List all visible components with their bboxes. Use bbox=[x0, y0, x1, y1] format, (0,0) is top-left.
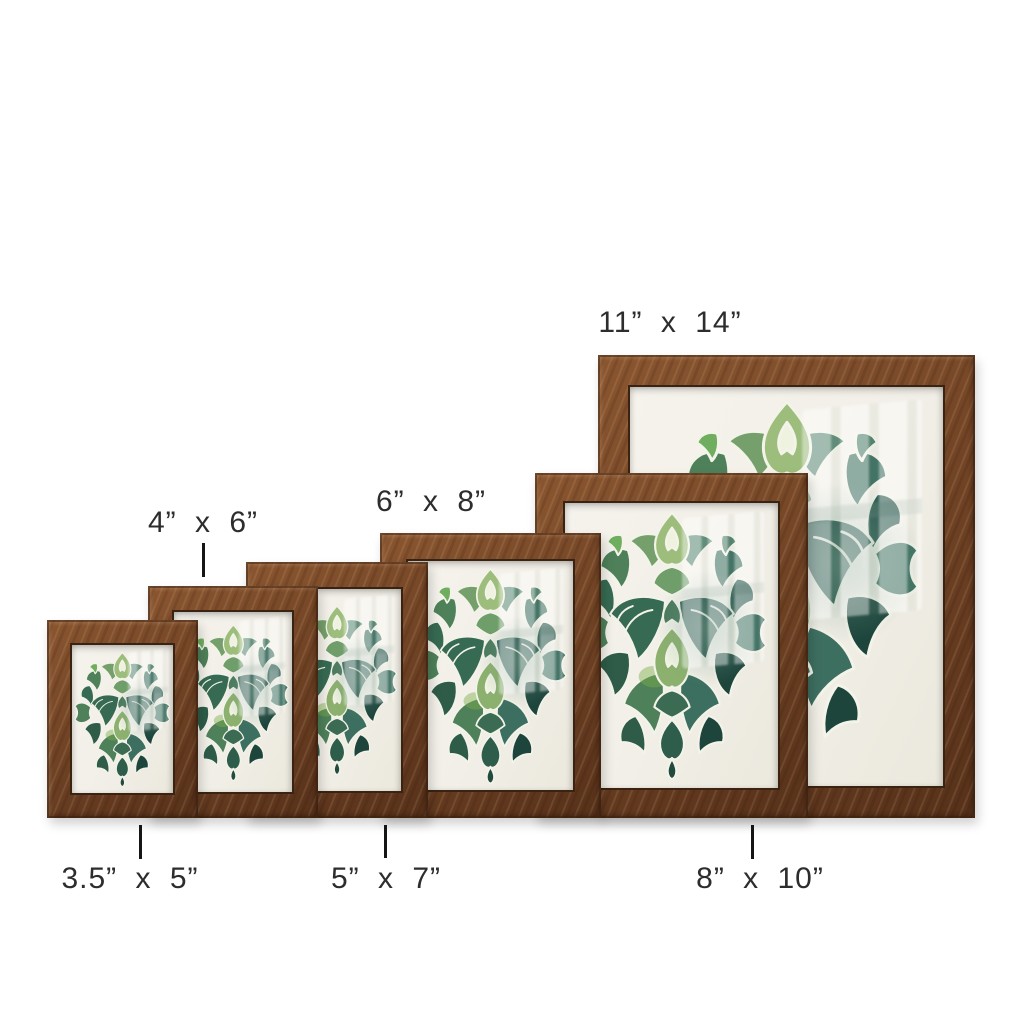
size-label-4x6: 4” x 6” bbox=[148, 506, 258, 540]
tick-3.5x5 bbox=[139, 825, 142, 859]
product-image-canvas: 11” x 14” 6” x 8” 4” x 6” 3.5” x 5” 5” x… bbox=[0, 0, 1024, 1024]
glass-reflection-panes bbox=[499, 568, 563, 695]
glass-reflection-panes bbox=[128, 649, 168, 732]
size-label-3.5x5: 3.5” x 5” bbox=[61, 862, 198, 896]
glass-reflection-panes bbox=[239, 617, 285, 717]
size-label-11x14: 11” x 14” bbox=[598, 306, 741, 340]
size-label-6x8: 6” x 8” bbox=[376, 485, 486, 519]
tick-8x10 bbox=[751, 825, 754, 859]
frame-3.5x5-glass bbox=[70, 643, 175, 795]
tick-4x6 bbox=[202, 543, 205, 577]
frame-3.5x5 bbox=[47, 620, 198, 818]
size-label-8x10: 8” x 10” bbox=[696, 862, 824, 896]
frame-6x8-glass bbox=[406, 559, 575, 792]
size-label-5x7: 5” x 7” bbox=[331, 862, 441, 896]
tick-5x7 bbox=[384, 825, 387, 858]
glass-reflection-panes bbox=[344, 595, 394, 707]
glass-reflection-panes bbox=[803, 399, 923, 620]
glass-reflection-panes bbox=[683, 512, 765, 670]
